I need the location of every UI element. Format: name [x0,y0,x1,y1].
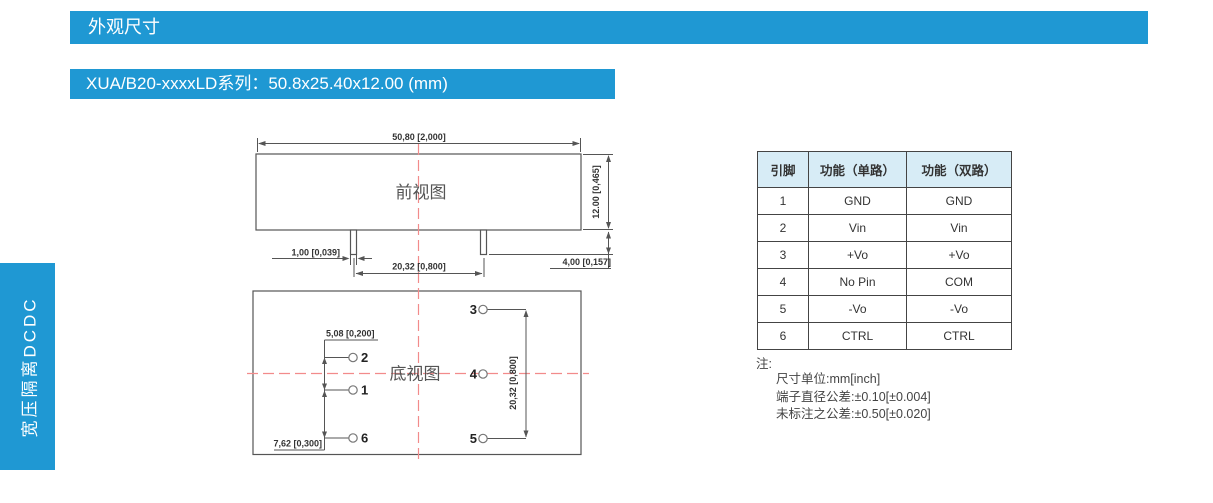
sidebar-category-tab: 宽压隔离DCDC [0,263,55,470]
cell-pin: 1 [758,188,809,215]
dim-bottom-pin-pitch: 20,32 [0,800] [508,356,518,410]
pin-function-table: 引脚 功能（单路） 功能（双路） 1 GND GND 2 Vin Vin 3 +… [757,151,1012,350]
col-header-single: 功能（单路） [809,152,907,188]
table-row: 2 Vin Vin [758,215,1012,242]
pin-3-hole [479,305,487,313]
cell-dual: CTRL [907,323,1012,350]
note-line-terminal-tolerance: 端子直径公差:±0.10[±0.004] [776,389,931,407]
pin-2-hole [349,353,357,361]
sidebar-category-label: 宽压隔离DCDC [15,296,40,437]
front-view-label: 前视图 [396,183,447,202]
front-view-left-pin [351,230,357,255]
front-view-right-pin [481,230,487,255]
cell-dual: COM [907,269,1012,296]
dim-pin-length: 4,00 [0,157] [562,257,611,267]
cell-pin: 6 [758,323,809,350]
note-line-general-tolerance: 未标注之公差:±0.50[±0.020] [776,406,931,424]
col-header-pin: 引脚 [758,152,809,188]
pin-1-hole [349,386,357,394]
cell-pin: 2 [758,215,809,242]
bottom-view-label: 底视图 [390,365,441,384]
series-header-bar: XUA/B20-xxxxLD系列：50.8x25.40x12.00 (mm) [70,69,615,99]
cell-single: +Vo [809,242,907,269]
col-header-dual: 功能（双路） [907,152,1012,188]
cell-pin: 4 [758,269,809,296]
pin-5-hole [479,434,487,442]
section-title: 外观尺寸 [88,17,160,37]
pin-label-3: 3 [470,302,477,317]
dim-body-height: 12.00 [0,465] [591,165,601,219]
datasheet-page: 外观尺寸 XUA/B20-xxxxLD系列：50.8x25.40x12.00 (… [0,0,1213,503]
series-title: XUA/B20-xxxxLD系列：50.8x25.40x12.00 (mm) [86,74,448,93]
pin-label-2: 2 [361,350,368,365]
pin-6-hole [349,434,357,442]
table-row: 5 -Vo -Vo [758,296,1012,323]
cell-single: CTRL [809,323,907,350]
table-header-row: 引脚 功能（单路） 功能（双路） [758,152,1012,188]
dim-front-pin-pitch: 20,32 [0,800] [392,262,446,272]
dim-body-width: 50,80 [2,000] [392,132,446,142]
cell-single: -Vo [809,296,907,323]
section-header-bar: 外观尺寸 [70,11,1148,44]
pin-label-6: 6 [361,431,368,446]
table-row: 4 No Pin COM [758,269,1012,296]
note-line-units: 尺寸单位:mm[inch] [776,371,931,389]
table-row: 6 CTRL CTRL [758,323,1012,350]
pin-label-1: 1 [361,383,368,398]
dim-pin-offset-large: 7,62 [0,300] [273,439,322,449]
cell-single: Vin [809,215,907,242]
cell-dual: Vin [907,215,1012,242]
dimension-drawing: 前视图 底视图 50,80 [2,000] 12.00 [0,465] 1,00… [240,125,660,480]
table-row: 3 +Vo +Vo [758,242,1012,269]
table-row: 1 GND GND [758,188,1012,215]
pin-label-5: 5 [470,431,477,446]
cell-dual: -Vo [907,296,1012,323]
pin-label-4: 4 [470,367,478,382]
notes-block: 注: 尺寸单位:mm[inch] 端子直径公差:±0.10[±0.004] 未标… [756,357,931,424]
cell-dual: GND [907,188,1012,215]
cell-pin: 3 [758,242,809,269]
pin-4-hole [479,370,487,378]
dim-pin-offset-small: 5,08 [0,200] [326,329,375,339]
dim-pin-width: 1,00 [0,039] [291,248,340,258]
cell-dual: +Vo [907,242,1012,269]
cell-single: No Pin [809,269,907,296]
cell-single: GND [809,188,907,215]
notes-title: 注: [756,357,931,371]
cell-pin: 5 [758,296,809,323]
